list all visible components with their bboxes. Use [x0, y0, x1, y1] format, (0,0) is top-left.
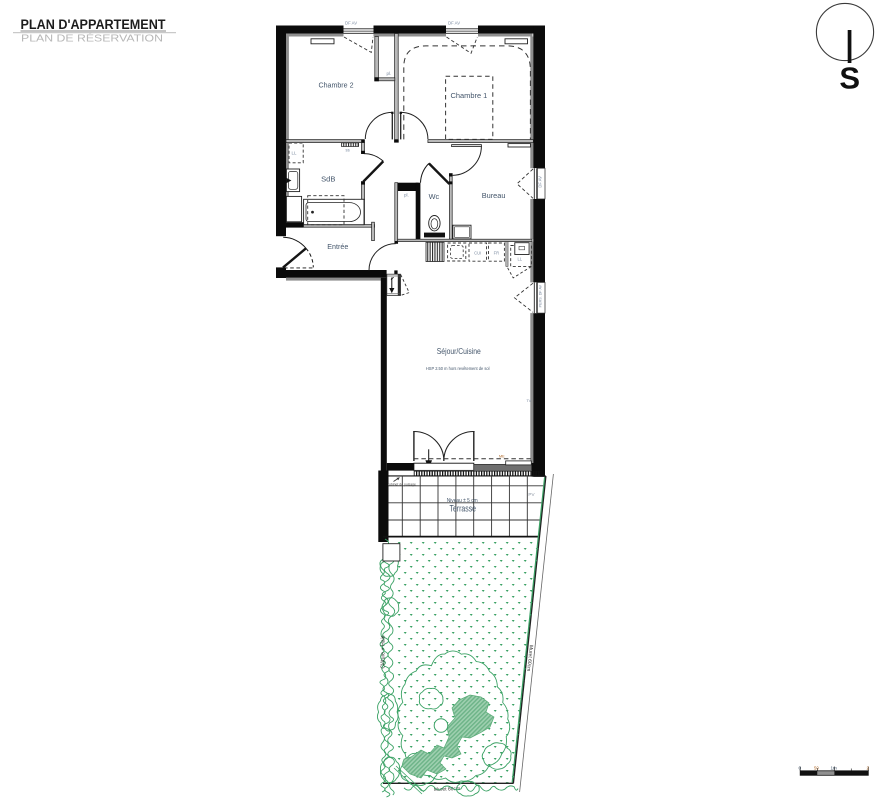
svg-text:LL: LL: [292, 151, 297, 156]
svg-text:1m: 1m: [831, 766, 838, 771]
svg-text:robinet de puisage: robinet de puisage: [388, 483, 416, 487]
svg-text:Chambre 1: Chambre 1: [451, 91, 488, 100]
svg-text:PERS. DF AV: PERS. DF AV: [538, 284, 542, 307]
svg-text:TV: TV: [526, 399, 531, 403]
svg-text:Bureau: Bureau: [482, 191, 506, 200]
svg-text:SdB: SdB: [321, 174, 335, 183]
svg-text:HSP 2.50 m hors revêtement de: HSP 2.50 m hors revêtement de sol: [426, 366, 490, 371]
svg-text:DF AV: DF AV: [537, 176, 542, 188]
svg-text:PLAN D'APPARTEMENT: PLAN D'APPARTEMENT: [21, 17, 167, 32]
svg-text:Terrasse: Terrasse: [450, 503, 477, 513]
svg-text:Entrée: Entrée: [327, 242, 348, 251]
svg-text:2: 2: [867, 766, 870, 771]
svg-text:pl.: pl.: [404, 193, 409, 198]
svg-text:DF AV: DF AV: [448, 21, 460, 26]
svg-text:DF AV: DF AV: [345, 21, 357, 26]
svg-text:Chambre 2: Chambre 2: [319, 80, 354, 89]
svg-text:FR: FR: [494, 251, 500, 256]
svg-text:PLAN DE RÉSERVATION: PLAN DE RÉSERVATION: [21, 32, 163, 45]
svg-text:PV: PV: [528, 492, 535, 497]
svg-text:Séjour/Cuisine: Séjour/Cuisine: [437, 347, 482, 356]
svg-text:ss: ss: [346, 148, 350, 153]
svg-text:ME: ME: [499, 455, 505, 459]
svg-text:0: 0: [799, 766, 802, 771]
svg-text:LL: LL: [518, 257, 523, 262]
svg-text:Clôture + Haie: Clôture + Haie: [381, 635, 387, 668]
svg-text:CUI: CUI: [474, 251, 481, 256]
svg-text:Wc: Wc: [429, 192, 440, 201]
svg-text:50: 50: [814, 766, 819, 771]
svg-text:S: S: [839, 61, 860, 96]
svg-text:pl.: pl.: [387, 71, 392, 76]
